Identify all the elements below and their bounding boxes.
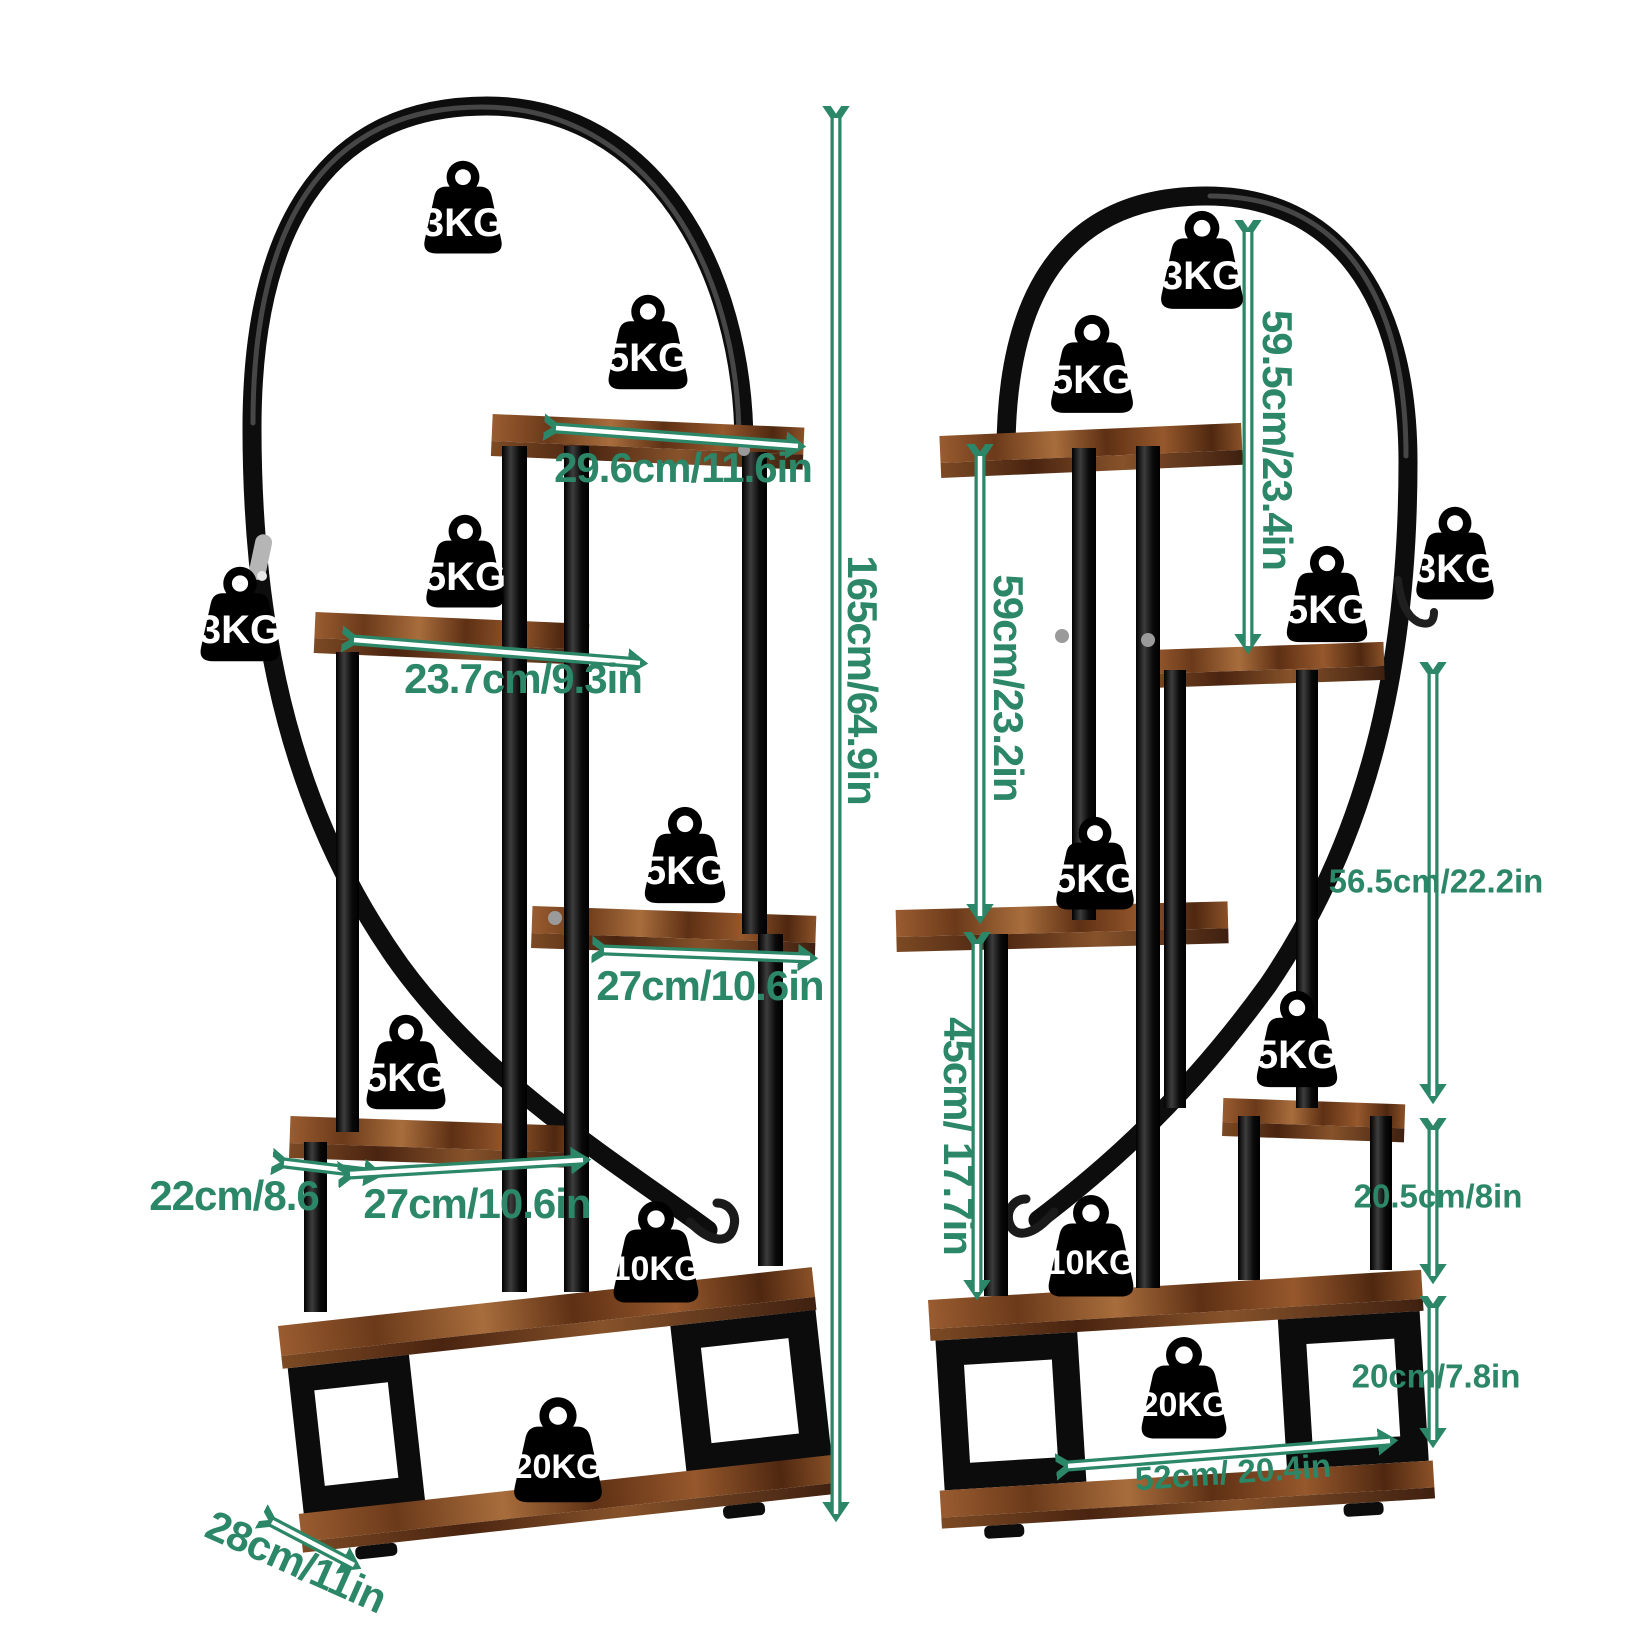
dim-label-second-shelf-width: 23.7cm/9.3in bbox=[404, 658, 642, 700]
dim-label-side-span-height: 56.5cm/22.2in bbox=[1329, 865, 1544, 898]
weight-badge: 5KG bbox=[352, 1014, 460, 1116]
weight-label: 3KG bbox=[410, 203, 516, 243]
dim-label-shelf-gap-height: 20.5cm/8in bbox=[1354, 1180, 1523, 1213]
dim-label-fourth-shelf-depth: 22cm/8.6 bbox=[149, 1175, 318, 1217]
weight-badge: 5KG bbox=[630, 806, 740, 910]
weight-label: 3KG bbox=[186, 610, 294, 650]
dim-arrow-fourth-shelf-width bbox=[350, 1160, 583, 1174]
weight-label: 10KG bbox=[598, 1252, 714, 1286]
weight-label: 20KG bbox=[498, 1450, 618, 1484]
weight-badge: 10KG bbox=[598, 1200, 714, 1310]
weight-label: 5KG bbox=[1242, 1035, 1352, 1075]
weight-badge: 20KG bbox=[498, 1396, 618, 1510]
dim-label-top-shelf-width: 29.6cm/11.6in bbox=[554, 447, 812, 489]
dim-label-upper-section-height: 59cm/23.2in bbox=[987, 574, 1029, 801]
weight-badge: 3KG bbox=[186, 566, 294, 668]
dim-label-total-height: 165cm/64.9in bbox=[841, 555, 883, 805]
product-dimension-diagram: 3KG 5KG 3KG 5KG 5KG 5KG 10KG 20KG 3KG 5K… bbox=[0, 0, 1650, 1650]
weight-badge: 20KG bbox=[1126, 1336, 1242, 1446]
weight-label: 3KG bbox=[1146, 256, 1258, 296]
weight-badge: 3KG bbox=[1402, 506, 1508, 606]
weight-label: 5KG bbox=[352, 1058, 460, 1098]
weight-label: 5KG bbox=[630, 851, 740, 891]
right-base-foot bbox=[984, 1524, 1025, 1539]
weight-label: 5KG bbox=[412, 557, 518, 597]
stands-graphic bbox=[0, 0, 1650, 1650]
weight-label: 5KG bbox=[1042, 859, 1148, 899]
weight-badge: 5KG bbox=[594, 294, 702, 396]
weight-label: 20KG bbox=[1126, 1388, 1242, 1422]
weight-label: 10KG bbox=[1033, 1246, 1149, 1280]
right-base-foot bbox=[1343, 1502, 1384, 1517]
weight-badge: 5KG bbox=[1042, 816, 1148, 916]
dim-label-third-shelf-width: 27cm/10.6in bbox=[596, 965, 823, 1007]
weight-badge: 3KG bbox=[1146, 210, 1258, 316]
weight-label: 5KG bbox=[1272, 590, 1382, 630]
weight-badge: 3KG bbox=[410, 160, 516, 260]
weight-badge: 5KG bbox=[1036, 314, 1148, 420]
dim-label-lower-section-height: 45cm/ 17.7in bbox=[937, 1017, 979, 1255]
weight-label: 3KG bbox=[1402, 549, 1508, 589]
weight-badge: 10KG bbox=[1033, 1194, 1149, 1304]
dim-label-base-height: 20cm/7.8in bbox=[1352, 1360, 1521, 1393]
weight-label: 5KG bbox=[594, 338, 702, 378]
dim-label-fourth-shelf-width: 27cm/10.6in bbox=[363, 1183, 590, 1225]
dim-label-arch-drop-height: 59.5cm/23.4in bbox=[1256, 310, 1298, 570]
weight-badge: 5KG bbox=[1242, 990, 1352, 1094]
weight-badge: 5KG bbox=[412, 514, 518, 614]
weight-label: 5KG bbox=[1036, 360, 1148, 400]
